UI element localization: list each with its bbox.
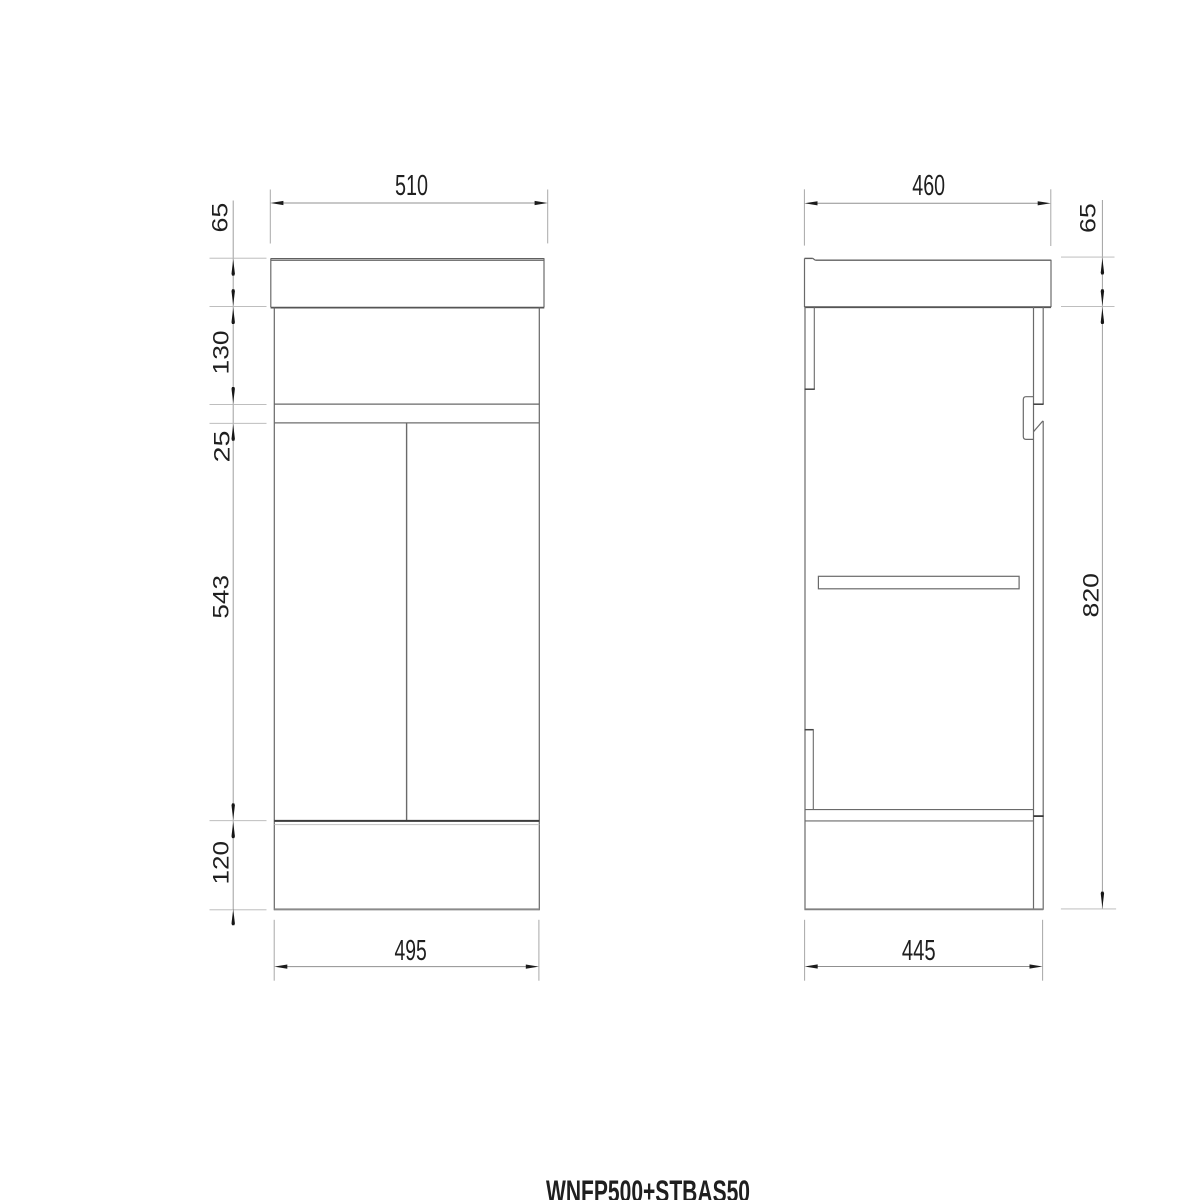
svg-text:120: 120 <box>209 841 234 885</box>
svg-text:65: 65 <box>1076 203 1101 233</box>
svg-text:25: 25 <box>209 431 234 463</box>
svg-text:460: 460 <box>912 170 945 202</box>
svg-text:130: 130 <box>209 330 234 374</box>
svg-text:820: 820 <box>1078 573 1103 618</box>
svg-text:495: 495 <box>395 935 427 967</box>
svg-text:445: 445 <box>902 935 936 967</box>
svg-text:543: 543 <box>208 575 233 619</box>
svg-text:510: 510 <box>395 170 428 202</box>
svg-text:WNFP500+STBAS50: WNFP500+STBAS50 <box>546 1173 750 1200</box>
svg-text:65: 65 <box>208 203 233 233</box>
